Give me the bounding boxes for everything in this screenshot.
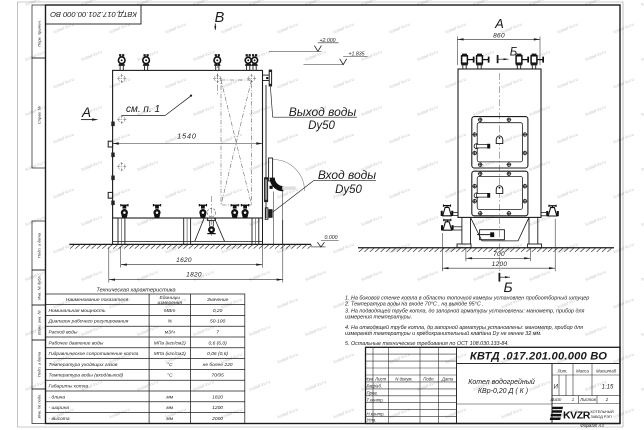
svg-text:Формат А3: Формат А3 [580, 423, 604, 428]
svg-text:kotlad-kv.ru: kotlad-kv.ru [641, 379, 644, 392]
svg-text:kotlad-kv.ru: kotlad-kv.ru [529, 104, 552, 117]
svg-text:Взам. инв. №: Взам. инв. № [37, 309, 42, 334]
svg-text:Лист: Лист [549, 397, 561, 402]
svg-text:Температура уходящих газов: Температура уходящих газов [49, 362, 118, 368]
svg-text:kotlad-kv.ru: kotlad-kv.ru [81, 324, 104, 337]
svg-text:2: 2 [605, 397, 609, 402]
svg-text:Разраб.: Разраб. [367, 384, 383, 389]
svg-text:700: 700 [493, 251, 505, 258]
svg-text:kotlad-kv.ru: kotlad-kv.ru [445, 21, 468, 34]
svg-text:kotlad-kv.ru: kotlad-kv.ru [501, 131, 524, 144]
svg-text:kotlad-kv.ru: kotlad-kv.ru [25, 49, 48, 62]
svg-text:kotlad-kv.ru: kotlad-kv.ru [361, 214, 384, 227]
svg-text:kotlad-kv.ru: kotlad-kv.ru [613, 21, 636, 34]
svg-text:kotlad-kv.ru: kotlad-kv.ru [333, 76, 356, 89]
svg-text:Справ. №: Справ. № [37, 105, 42, 124]
svg-text:kotlad-kv.ru: kotlad-kv.ru [53, 186, 76, 199]
svg-text:2. Температура воды на входе: 2. Температура воды на входе 70°С , на в… [344, 302, 484, 308]
svg-text:мм: мм [166, 395, 173, 400]
svg-text:kotlad-kv.ru: kotlad-kv.ru [389, 186, 412, 199]
svg-text:kotlad-kv.ru: kotlad-kv.ru [389, 76, 412, 89]
svg-text:°С: °С [167, 362, 173, 368]
svg-text:измерения: измерения [158, 301, 183, 306]
svg-text:kotlad-kv.ru: kotlad-kv.ru [585, 49, 608, 62]
svg-text:kotlad-kv.ru: kotlad-kv.ru [613, 186, 636, 199]
svg-text:860: 860 [493, 33, 505, 40]
svg-text:Пров.: Пров. [367, 391, 378, 396]
svg-text:kotlad-kv.ru: kotlad-kv.ru [277, 351, 300, 364]
svg-text:kotlad-kv.ru: kotlad-kv.ru [473, 0, 496, 7]
svg-text:измерения температуры и предох: измерения температуры и предохранительны… [345, 330, 542, 337]
svg-text:kotlad-kv.ru: kotlad-kv.ru [529, 269, 552, 282]
svg-text:ЗАВОД РЭП: ЗАВОД РЭП [591, 415, 612, 419]
svg-text:kotlad-kv.ru: kotlad-kv.ru [417, 159, 440, 172]
svg-text:kotlad-kv.ru: kotlad-kv.ru [389, 351, 412, 364]
svg-text:kotlad-kv.ru: kotlad-kv.ru [445, 186, 468, 199]
svg-text:kotlad-kv.ru: kotlad-kv.ru [333, 241, 356, 254]
svg-text:kotlad-kv.ru: kotlad-kv.ru [417, 0, 440, 7]
svg-text:1820: 1820 [186, 271, 202, 278]
svg-text:Листов: Листов [579, 397, 596, 402]
svg-text:МПа (кгс/см2): МПа (кгс/см2) [154, 340, 186, 346]
svg-text:Н.контр.: Н.контр. [367, 411, 385, 416]
svg-text:не более 220: не более 220 [203, 362, 233, 368]
svg-text:kotlad-kv.ru: kotlad-kv.ru [613, 351, 636, 364]
svg-text:1: 1 [572, 397, 575, 402]
svg-text:Б: Б [503, 279, 512, 295]
svg-text:kotlad-kv.ru: kotlad-kv.ru [641, 269, 644, 282]
svg-text:kotlad-kv.ru: kotlad-kv.ru [585, 104, 608, 117]
svg-text:см. п. 1: см. п. 1 [126, 104, 160, 115]
svg-text:Масштаб: Масштаб [596, 368, 617, 373]
svg-text:КВТД .017.201.00.000 ВО: КВТД .017.201.00.000 ВО [470, 351, 607, 363]
svg-text:kotlad-kv.ru: kotlad-kv.ru [557, 131, 580, 144]
svg-text:kotlad-kv.ru: kotlad-kv.ru [193, 379, 216, 392]
svg-text:Дата: Дата [441, 377, 454, 382]
svg-text:В: В [215, 10, 225, 26]
svg-text:+2.000: +2.000 [319, 38, 335, 44]
svg-text:+1.835: +1.835 [348, 52, 364, 58]
svg-text:kotlad-kv.ru: kotlad-kv.ru [361, 269, 384, 282]
svg-text:КВТД.017.201.00.000 ВО: КВТД.017.201.00.000 ВО [50, 10, 137, 19]
svg-text:kotlad-kv.ru: kotlad-kv.ru [529, 159, 552, 172]
svg-text:Dy50: Dy50 [308, 120, 335, 132]
svg-text:kotlad-kv.ru: kotlad-kv.ru [333, 351, 356, 364]
svg-text:kotlad-kv.ru: kotlad-kv.ru [277, 21, 300, 34]
svg-text:- ширина: - ширина [49, 406, 70, 411]
svg-text:kotlad-kv.ru: kotlad-kv.ru [277, 296, 300, 309]
svg-text:kotlad-kv.ru: kotlad-kv.ru [221, 241, 244, 254]
svg-text:Инв. № дубл.: Инв. № дубл. [37, 275, 42, 300]
svg-text:kotlad-kv.ru: kotlad-kv.ru [613, 76, 636, 89]
svg-text:kotlad-kv.ru: kotlad-kv.ru [109, 21, 132, 34]
svg-text:- высота: - высота [49, 417, 70, 422]
svg-text:kotlad-kv.ru: kotlad-kv.ru [81, 49, 104, 62]
svg-text:kotlad-kv.ru: kotlad-kv.ru [249, 269, 272, 282]
svg-text:kotlad-kv.ru: kotlad-kv.ru [193, 0, 216, 7]
svg-text:А: А [494, 16, 504, 31]
svg-text:Вход воды: Вход воды [318, 168, 376, 182]
svg-text:kotlad-kv.ru: kotlad-kv.ru [445, 131, 468, 144]
svg-text:kotlad-kv.ru: kotlad-kv.ru [193, 49, 216, 62]
svg-text:kotlad-kv.ru: kotlad-kv.ru [81, 0, 104, 7]
svg-text:kotlad-kv.ru: kotlad-kv.ru [529, 0, 552, 7]
svg-text:kotlad-kv.ru: kotlad-kv.ru [305, 214, 328, 227]
svg-text:Подп. и дата: Подп. и дата [37, 351, 42, 377]
svg-text:N докум.: N докум. [395, 377, 412, 382]
svg-text:50-100: 50-100 [210, 319, 226, 325]
svg-text:kotlad-kv.ru: kotlad-kv.ru [501, 406, 524, 419]
svg-text:70/95: 70/95 [211, 373, 224, 379]
svg-text:kotlad-kv.ru: kotlad-kv.ru [641, 104, 644, 117]
svg-text:Т.контр.: Т.контр. [367, 397, 384, 402]
svg-text:Лист: Лист [374, 377, 386, 382]
svg-text:kotlad-kv.ru: kotlad-kv.ru [53, 21, 76, 34]
svg-text:kotlad-kv.ru: kotlad-kv.ru [389, 131, 412, 144]
svg-text:МВт: МВт [164, 308, 175, 314]
svg-text:kotlad-kv.ru: kotlad-kv.ru [81, 159, 104, 172]
svg-text:1200: 1200 [492, 261, 508, 268]
svg-text:kotlad-kv.ru: kotlad-kv.ru [641, 49, 644, 62]
svg-text:kotlad-kv.ru: kotlad-kv.ru [137, 269, 160, 282]
svg-text:kotlad-kv.ru: kotlad-kv.ru [389, 406, 412, 419]
svg-text:°С: °С [167, 373, 173, 379]
svg-text:kotlad-kv.ru: kotlad-kv.ru [585, 0, 608, 7]
svg-text:1620: 1620 [176, 257, 192, 264]
svg-text:kotlad-kv.ru: kotlad-kv.ru [165, 186, 188, 199]
svg-text:kotlad-kv.ru: kotlad-kv.ru [193, 104, 216, 117]
svg-text:kotlad-kv.ru: kotlad-kv.ru [473, 159, 496, 172]
svg-text:Номинальная мощность: Номинальная мощность [49, 308, 107, 314]
svg-text:kotlad-kv.ru: kotlad-kv.ru [585, 159, 608, 172]
svg-text:Наименование показателя: Наименование показателя [66, 297, 129, 303]
svg-text:kotlad-kv.ru: kotlad-kv.ru [277, 406, 300, 419]
svg-text:мм: мм [166, 406, 173, 411]
svg-text:kotlad-kv.ru: kotlad-kv.ru [109, 131, 132, 144]
svg-text:kotlad-kv.ru: kotlad-kv.ru [249, 0, 272, 7]
svg-text:мм: мм [166, 417, 173, 422]
svg-text:Инв. № подл.: Инв. № подл. [37, 394, 42, 419]
svg-text:kotlad-kv.ru: kotlad-kv.ru [361, 104, 384, 117]
svg-text:kotlad-kv.ru: kotlad-kv.ru [221, 76, 244, 89]
svg-text:kotlad-kv.ru: kotlad-kv.ru [417, 49, 440, 62]
svg-text:kotlad-kv.ru: kotlad-kv.ru [473, 269, 496, 282]
svg-text:Техническая характеристика: Техническая характеристика [96, 287, 175, 293]
svg-text:kotlad-kv.ru: kotlad-kv.ru [277, 76, 300, 89]
svg-text:1. На боковой стенке котла в: 1. На боковой стенке котла в области топ… [345, 294, 589, 301]
svg-text:Утв.: Утв. [367, 418, 377, 423]
svg-text:0,6 (6,0): 0,6 (6,0) [208, 340, 227, 346]
svg-text:kotlad-kv.ru: kotlad-kv.ru [249, 104, 272, 117]
svg-text:kotlad-kv.ru: kotlad-kv.ru [53, 76, 76, 89]
svg-text:kotlad-kv.ru: kotlad-kv.ru [305, 324, 328, 337]
svg-text:2000: 2000 [211, 416, 223, 422]
svg-text:kotlad-kv.ru: kotlad-kv.ru [641, 214, 644, 227]
svg-text:kotlad-kv.ru: kotlad-kv.ru [81, 269, 104, 282]
svg-text:kotlad-kv.ru: kotlad-kv.ru [613, 406, 636, 419]
svg-text:kotlad-kv.ru: kotlad-kv.ru [137, 324, 160, 337]
svg-text:kotlad-kv.ru: kotlad-kv.ru [333, 21, 356, 34]
svg-text:kotlad-kv.ru: kotlad-kv.ru [445, 351, 468, 364]
svg-text:Диапазон рабочего регулировани: Диапазон рабочего регулирования [48, 319, 129, 325]
svg-text:Значение: Значение [207, 297, 229, 303]
svg-text:kotlad-kv.ru: kotlad-kv.ru [641, 324, 644, 337]
svg-text:kotlad-kv.ru: kotlad-kv.ru [137, 0, 160, 7]
svg-text:КВр-0,20 Д ( К ): КВр-0,20 Д ( К ) [478, 388, 528, 395]
svg-text:Выход воды: Выход воды [289, 105, 357, 119]
svg-text:KVZR: KVZR [563, 410, 591, 422]
svg-text:Гидравлическое сопротивление к: Гидравлическое сопротивление котла [49, 351, 139, 357]
svg-text:И: И [554, 385, 559, 391]
svg-text:kotlad-kv.ru: kotlad-kv.ru [585, 269, 608, 282]
svg-text:0,06 (0,6): 0,06 (0,6) [207, 351, 228, 357]
svg-text:kotlad-kv.ru: kotlad-kv.ru [193, 159, 216, 172]
svg-text:kotlad-kv.ru: kotlad-kv.ru [277, 131, 300, 144]
svg-text:kotlad-kv.ru: kotlad-kv.ru [641, 159, 644, 172]
svg-text:kotlad-kv.ru: kotlad-kv.ru [137, 379, 160, 392]
svg-text:0.000: 0.000 [325, 235, 338, 241]
svg-text:kotlad-kv.ru: kotlad-kv.ru [137, 159, 160, 172]
svg-text:kotlad-kv.ru: kotlad-kv.ru [305, 49, 328, 62]
svg-text:kotlad-kv.ru: kotlad-kv.ru [25, 159, 48, 172]
svg-text:kotlad-kv.ru: kotlad-kv.ru [53, 241, 76, 254]
svg-text:kotlad-kv.ru: kotlad-kv.ru [25, 0, 48, 7]
svg-text:kotlad-kv.ru: kotlad-kv.ru [165, 76, 188, 89]
svg-text:5. Остальные технические треб: 5. Остальные технические требования по О… [345, 341, 509, 347]
svg-text:kotlad-kv.ru: kotlad-kv.ru [501, 186, 524, 199]
svg-text:kotlad-kv.ru: kotlad-kv.ru [249, 159, 272, 172]
svg-text:Подп. и дата: Подп. и дата [37, 232, 42, 258]
svg-text:kotlad-kv.ru: kotlad-kv.ru [501, 76, 524, 89]
svg-text:kotlad-kv.ru: kotlad-kv.ru [165, 21, 188, 34]
svg-text:kotlad-kv.ru: kotlad-kv.ru [445, 76, 468, 89]
svg-text:kotlad-kv.ru: kotlad-kv.ru [53, 131, 76, 144]
svg-text:kotlad-kv.ru: kotlad-kv.ru [417, 104, 440, 117]
svg-text:kotlad-kv.ru: kotlad-kv.ru [557, 186, 580, 199]
svg-text:1540: 1540 [177, 132, 197, 141]
svg-text:1:15: 1:15 [602, 385, 614, 391]
svg-text:kotlad-kv.ru: kotlad-kv.ru [361, 0, 384, 7]
svg-text:0,20: 0,20 [213, 308, 223, 314]
svg-text:МПа (кгс/см2): МПа (кгс/см2) [154, 351, 186, 357]
svg-text:kotlad-kv.ru: kotlad-kv.ru [417, 214, 440, 227]
svg-text:kotlad-kv.ru: kotlad-kv.ru [277, 241, 300, 254]
svg-text:Рабочее давление воды: Рабочее давление воды [49, 340, 104, 346]
svg-text:kotlad-kv.ru: kotlad-kv.ru [25, 379, 48, 392]
svg-text:Dy50: Dy50 [335, 184, 362, 196]
svg-text:КОТЕЛЬНЫЙ: КОТЕЛЬНЫЙ [591, 410, 614, 414]
svg-text:kotlad-kv.ru: kotlad-kv.ru [305, 0, 328, 7]
svg-text:kotlad-kv.ru: kotlad-kv.ru [641, 0, 644, 7]
svg-text:1200: 1200 [212, 405, 223, 411]
svg-text:kotlad-kv.ru: kotlad-kv.ru [613, 241, 636, 254]
svg-text:Перв. примен.: Перв. примен. [37, 20, 42, 47]
svg-text:kotlad-kv.ru: kotlad-kv.ru [249, 379, 272, 392]
svg-text:Масса: Масса [576, 368, 589, 373]
svg-text:Температура воды (вход/выход): Температура воды (вход/выход) [49, 373, 124, 379]
svg-text:%: % [168, 319, 173, 325]
svg-text:kotlad-kv.ru: kotlad-kv.ru [613, 296, 636, 309]
svg-text:kotlad-kv.ru: kotlad-kv.ru [585, 214, 608, 227]
svg-text:kotlad-kv.ru: kotlad-kv.ru [81, 214, 104, 227]
svg-text:kotlad-kv.ru: kotlad-kv.ru [249, 324, 272, 337]
svg-text:kotlad-kv.ru: kotlad-kv.ru [557, 21, 580, 34]
svg-text:Котел водогрейный: Котел водогрейный [468, 378, 535, 386]
svg-text:м3/ч: м3/ч [165, 330, 175, 336]
svg-text:измерения температуры.: измерения температуры. [345, 314, 412, 320]
svg-text:kotlad-kv.ru: kotlad-kv.ru [445, 406, 468, 419]
svg-text:Подп.: Подп. [423, 377, 434, 382]
svg-text:kotlad-kv.ru: kotlad-kv.ru [305, 379, 328, 392]
svg-text:kotlad-kv.ru: kotlad-kv.ru [25, 214, 48, 227]
svg-text:Габариты котла: Габариты котла [49, 384, 89, 390]
svg-text:kotlad-kv.ru: kotlad-kv.ru [305, 269, 328, 282]
svg-text:kotlad-kv.ru: kotlad-kv.ru [221, 131, 244, 144]
svg-text:1820: 1820 [212, 394, 223, 400]
svg-text:Изм: Изм [365, 377, 373, 382]
svg-text:Лит.: Лит. [556, 368, 567, 373]
svg-text:kotlad-kv.ru: kotlad-kv.ru [333, 406, 356, 419]
svg-text:kotlad-kv.ru: kotlad-kv.ru [389, 21, 412, 34]
svg-text:kotlad-kv.ru: kotlad-kv.ru [333, 131, 356, 144]
svg-text:kotlad-kv.ru: kotlad-kv.ru [613, 131, 636, 144]
svg-text:kotlad-kv.ru: kotlad-kv.ru [473, 104, 496, 117]
svg-text:kotlad-kv.ru: kotlad-kv.ru [193, 324, 216, 337]
svg-text:kotlad-kv.ru: kotlad-kv.ru [557, 76, 580, 89]
svg-text:- длина: - длина [49, 394, 66, 400]
svg-text:kotlad-kv.ru: kotlad-kv.ru [417, 269, 440, 282]
svg-text:7: 7 [216, 330, 219, 336]
svg-text:Расход воды: Расход воды [49, 330, 78, 336]
svg-text:А: А [81, 105, 91, 120]
svg-text:kotlad-kv.ru: kotlad-kv.ru [585, 324, 608, 337]
